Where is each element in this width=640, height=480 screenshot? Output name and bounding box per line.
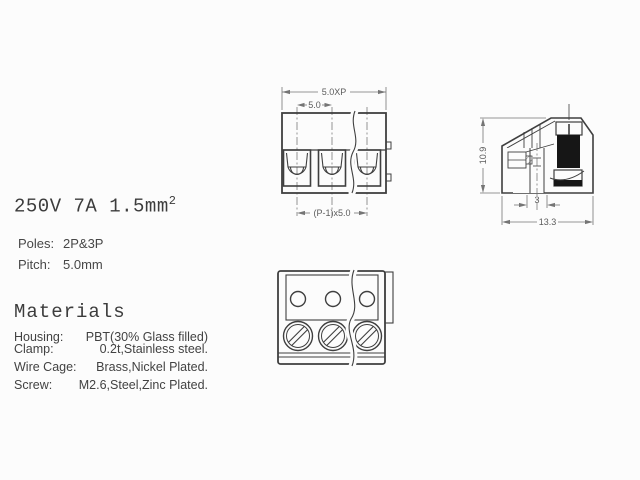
material-value: 0.2t,Stainless steel. bbox=[100, 342, 208, 356]
wire-entry-hole bbox=[360, 292, 375, 307]
rating-text: 250V 7A 1.5mm2 bbox=[14, 194, 176, 217]
materials-heading: Materials bbox=[14, 301, 126, 323]
material-row-screw: Screw: M2.6,Steel,Zinc Plated. bbox=[14, 378, 208, 391]
wire-cage-base bbox=[554, 180, 582, 186]
dim-label-height: 10.9 bbox=[478, 147, 488, 165]
screw-top-1 bbox=[284, 322, 313, 351]
break-line bbox=[349, 270, 355, 366]
screw-body bbox=[557, 135, 580, 168]
screw-top-3 bbox=[353, 322, 382, 351]
dim-label-pitch: 5.0 bbox=[308, 100, 321, 110]
dim-label-depth: 13.3 bbox=[539, 217, 557, 227]
poles-value: 2P&3P bbox=[63, 236, 103, 251]
front-view-drawing: 5.0XP 5.0 bbox=[265, 80, 400, 232]
dim-label-total-width: 5.0XP bbox=[322, 87, 347, 97]
terminal-block-datasheet: 250V 7A 1.5mm2 Poles:2P&3P Pitch:5.0mm M… bbox=[0, 0, 640, 480]
foot-notch bbox=[513, 173, 530, 193]
recessed-deck bbox=[286, 275, 378, 320]
material-row-wire-cage: Wire Cage: Brass,Nickel Plated. bbox=[14, 360, 208, 373]
housing-body-front bbox=[282, 113, 386, 193]
poles-spec: Poles:2P&3P bbox=[18, 236, 103, 251]
screw-top-2 bbox=[319, 322, 348, 351]
material-label: Wire Cage: bbox=[14, 360, 77, 374]
rating-main: 250V 7A 1.5mm bbox=[14, 195, 169, 217]
pitch-spec: Pitch:5.0mm bbox=[18, 257, 103, 272]
pitch-label: Pitch: bbox=[18, 257, 63, 272]
dim-label-pin-width: 3 bbox=[534, 195, 539, 205]
dim-depth: 13.3 bbox=[502, 196, 593, 227]
material-value: M2.6,Steel,Zinc Plated. bbox=[79, 378, 208, 392]
rating-superscript: 2 bbox=[169, 194, 177, 208]
material-value: Brass,Nickel Plated. bbox=[96, 360, 208, 374]
material-label: Screw: bbox=[14, 378, 52, 392]
material-row-clamp: Clamp: 0.2t,Stainless steel. bbox=[14, 342, 208, 355]
dim-pole-span: (P-1)x5.0 bbox=[297, 208, 367, 218]
break-line bbox=[351, 111, 356, 193]
dim-label-pole-span: (P-1)x5.0 bbox=[313, 208, 350, 218]
wire-entry-hole bbox=[326, 292, 341, 307]
material-label: Clamp: bbox=[14, 342, 54, 356]
pitch-value: 5.0mm bbox=[63, 257, 103, 272]
dim-pitch: 5.0 bbox=[297, 100, 332, 110]
side-view-drawing: 10.9 3 13.3 bbox=[478, 86, 638, 231]
wire-entry-hole bbox=[291, 292, 306, 307]
top-view-drawing bbox=[272, 262, 397, 372]
dim-total-width: 5.0XP bbox=[282, 87, 386, 110]
slope-inner-line bbox=[507, 121, 555, 148]
poles-label: Poles: bbox=[18, 236, 63, 251]
side-flange bbox=[385, 272, 393, 323]
